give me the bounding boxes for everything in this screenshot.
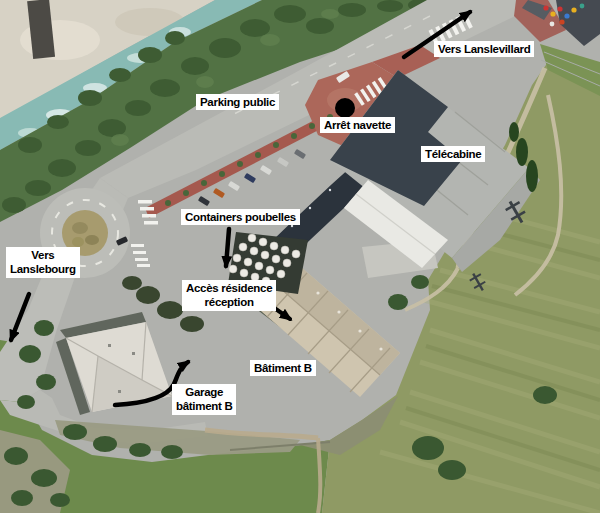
label-parking-public: Parking public xyxy=(196,94,279,110)
label-vers-lanslevillard: Vers Lanslevillard xyxy=(434,41,534,57)
label-containers-poubelles: Containers poubelles xyxy=(181,209,300,225)
aerial-map: Vers Lanslevillard Parking public Arrêt … xyxy=(0,0,600,513)
label-garage-batiment-b: Garage bâtiment B xyxy=(172,384,236,415)
aerial-photo xyxy=(0,0,600,513)
label-batiment-b: Bâtiment B xyxy=(250,360,316,376)
label-vers-lanslebourg: Vers Lanslebourg xyxy=(6,247,80,278)
label-telecabine: Télécabine xyxy=(421,146,485,162)
label-acces-residence: Accès résidence réception xyxy=(182,280,276,311)
arrow-containers xyxy=(226,229,229,266)
shuttle-stop-dot xyxy=(335,98,355,118)
label-arret-navette: Arrêt navette xyxy=(320,117,395,133)
